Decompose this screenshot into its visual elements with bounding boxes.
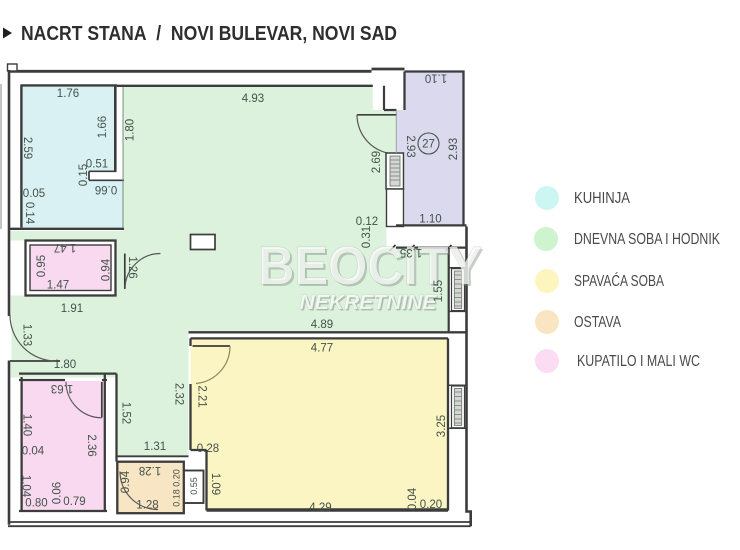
- svg-text:0.95: 0.95: [36, 255, 48, 277]
- svg-text:0.66: 0.66: [95, 183, 117, 195]
- svg-text:1.76: 1.76: [57, 88, 79, 100]
- svg-text:1.28: 1.28: [139, 464, 161, 476]
- svg-text:1.80: 1.80: [54, 359, 76, 371]
- svg-text:0.18: 0.18: [172, 489, 182, 507]
- svg-text:0.15: 0.15: [78, 164, 90, 186]
- svg-text:2.59: 2.59: [21, 137, 33, 159]
- svg-text:1.91: 1.91: [61, 303, 83, 315]
- svg-text:0.94: 0.94: [120, 470, 132, 493]
- svg-text:1.04: 1.04: [19, 475, 31, 498]
- svg-text:4.77: 4.77: [311, 343, 333, 355]
- svg-text:2.32: 2.32: [172, 383, 184, 405]
- svg-text:4.29: 4.29: [309, 502, 331, 514]
- svg-text:27: 27: [422, 139, 435, 151]
- svg-text:0.05: 0.05: [23, 188, 45, 200]
- svg-text:4.89: 4.89: [311, 319, 333, 331]
- svg-text:3.25: 3.25: [436, 415, 448, 437]
- svg-text:0.31: 0.31: [361, 226, 373, 248]
- svg-text:0.06: 0.06: [52, 482, 64, 504]
- svg-text:2.93: 2.93: [404, 135, 416, 157]
- svg-text:2.21: 2.21: [195, 385, 207, 407]
- svg-text:0.80: 0.80: [25, 498, 47, 510]
- svg-text:1.55: 1.55: [433, 280, 445, 302]
- svg-text:1.52: 1.52: [120, 402, 132, 424]
- svg-text:1.63: 1.63: [51, 382, 73, 394]
- svg-text:1.40: 1.40: [20, 414, 32, 436]
- svg-text:1.10: 1.10: [419, 214, 441, 226]
- svg-text:KUHINJA: KUHINJA: [574, 190, 631, 207]
- svg-text:0.14: 0.14: [23, 202, 35, 225]
- svg-text:1.47: 1.47: [54, 241, 76, 253]
- svg-text:0.55: 0.55: [189, 477, 199, 495]
- svg-text:4.93: 4.93: [242, 93, 264, 105]
- svg-text:0.28: 0.28: [197, 443, 219, 455]
- svg-text:1.31: 1.31: [144, 441, 166, 453]
- svg-text:1.35: 1.35: [400, 246, 422, 258]
- svg-text:0.79: 0.79: [63, 496, 85, 508]
- svg-text:1.09: 1.09: [209, 473, 221, 495]
- svg-text:1.80: 1.80: [125, 119, 137, 141]
- svg-text:OSTAVA: OSTAVA: [574, 314, 622, 331]
- svg-text:NACRT STANA / NOVI BULEVAR,: NACRT STANA / NOVI BULEVAR, NOVI SAD: [21, 23, 397, 45]
- svg-text:0.94: 0.94: [101, 258, 113, 281]
- svg-text:0.20: 0.20: [172, 469, 182, 487]
- svg-text:1.47: 1.47: [47, 280, 69, 292]
- svg-text:NEKRETNINE: NEKRETNINE: [300, 292, 438, 314]
- svg-text:2.69: 2.69: [371, 151, 383, 173]
- svg-text:2.36: 2.36: [85, 434, 97, 456]
- svg-text:1.28: 1.28: [136, 500, 158, 512]
- svg-text:0.04: 0.04: [407, 487, 419, 510]
- svg-text:0.20: 0.20: [420, 499, 442, 511]
- svg-text:1.33: 1.33: [21, 324, 33, 346]
- svg-text:1.10: 1.10: [425, 71, 447, 83]
- svg-text:SPAVAĆA SOBA: SPAVAĆA SOBA: [574, 273, 665, 290]
- svg-text:0.04: 0.04: [22, 446, 45, 458]
- svg-text:DNEVNA SOBA I HODNIK: DNEVNA SOBA I HODNIK: [574, 231, 721, 248]
- svg-text:1.66: 1.66: [97, 116, 109, 138]
- svg-text:1.26: 1.26: [126, 256, 138, 278]
- svg-text:KUPATILO I MALI WC: KUPATILO I MALI WC: [577, 353, 700, 370]
- svg-text:2.93: 2.93: [448, 138, 460, 160]
